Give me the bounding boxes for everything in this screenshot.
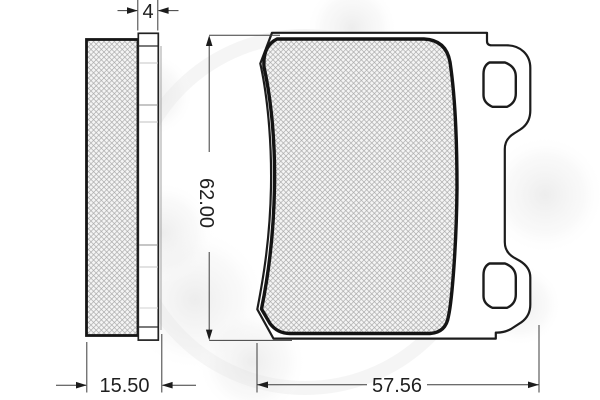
arrowhead (528, 382, 539, 389)
dimension-backplate-thickness: 4 (118, 0, 179, 31)
arrowhead (158, 7, 169, 14)
dimension-value-height: 62.00 (195, 178, 217, 228)
dimension-value-backplate-thickness: 4 (142, 1, 153, 23)
front-view-top-hole (484, 63, 516, 107)
technical-drawing: 4 15.50 62.00 57.56 (0, 0, 600, 400)
side-view-backplate (138, 33, 158, 340)
arrowhead (76, 382, 87, 389)
front-view-friction-pad (262, 39, 458, 334)
arrowhead (162, 382, 173, 389)
drawing-canvas: 4 15.50 62.00 57.56 (0, 0, 600, 400)
dimension-value-total-thickness: 15.50 (99, 375, 149, 397)
dimension-value-width: 57.56 (372, 375, 422, 397)
side-view-friction-material (87, 40, 139, 336)
side-view (87, 33, 162, 340)
front-view (257, 33, 530, 339)
front-view-bottom-hole (484, 264, 516, 308)
arrowhead (206, 35, 213, 46)
arrowhead (127, 7, 138, 14)
